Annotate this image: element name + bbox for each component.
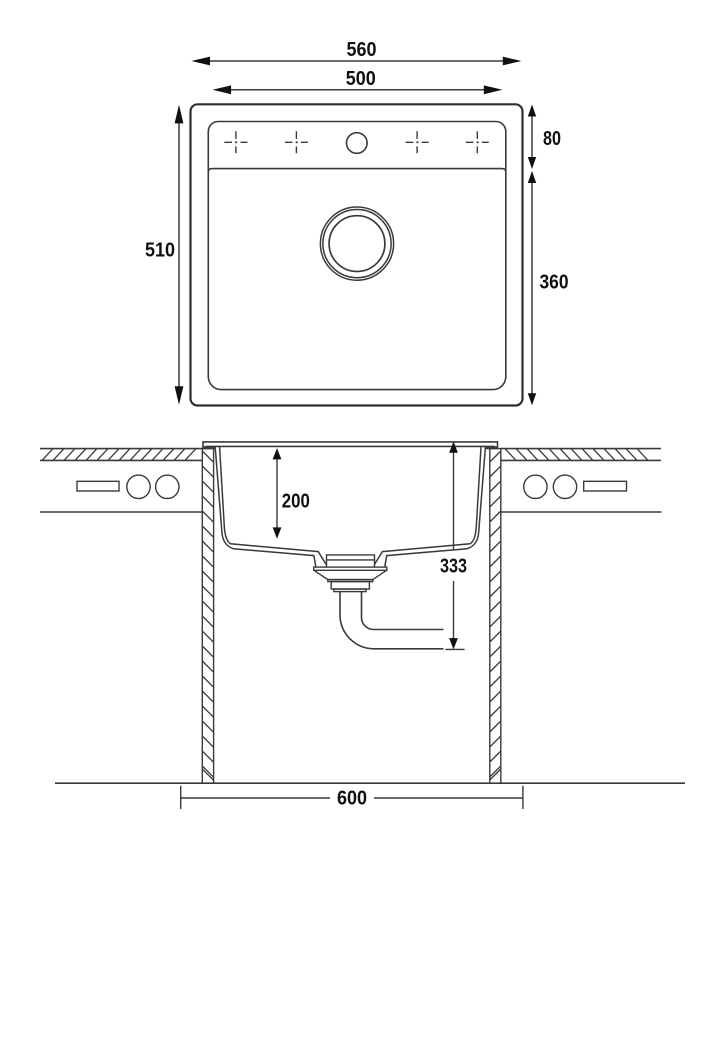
svg-text:500: 500	[346, 68, 376, 90]
svg-text:510: 510	[145, 240, 175, 262]
svg-text:360: 360	[540, 272, 569, 294]
svg-text:200: 200	[282, 491, 310, 513]
svg-text:80: 80	[543, 128, 561, 150]
svg-text:600: 600	[337, 788, 367, 810]
svg-text:560: 560	[347, 39, 377, 61]
svg-text:333: 333	[440, 556, 467, 578]
